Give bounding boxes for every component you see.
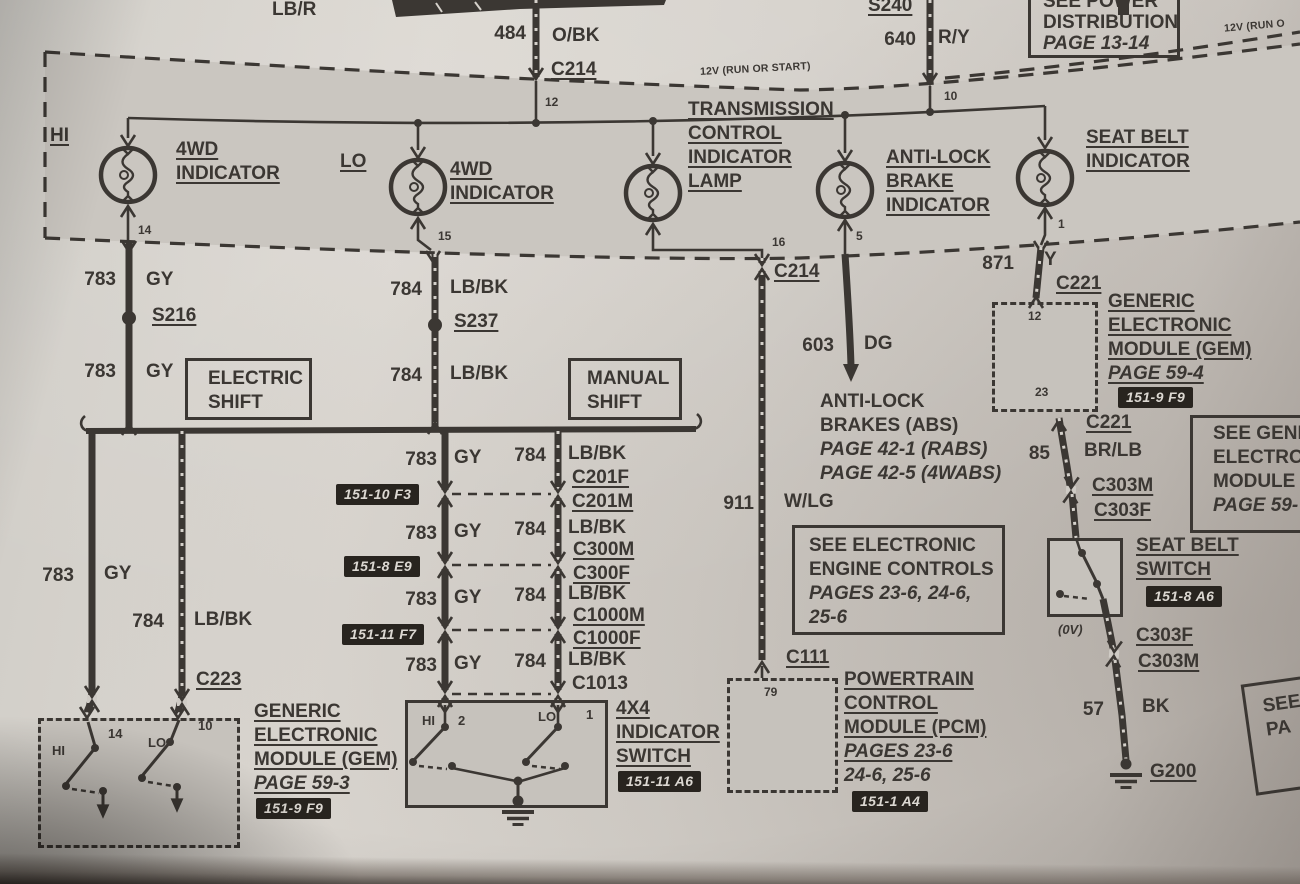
label-line: INDICATOR	[1086, 150, 1190, 174]
stack-row-number: 784	[498, 446, 546, 466]
pin-16: 16	[772, 236, 785, 249]
wire-871-number: 871	[978, 254, 1014, 274]
label-line: SWITCH	[616, 745, 691, 769]
pin-14: 14	[138, 224, 151, 237]
grid-badge: 151-1 A4	[852, 791, 928, 812]
connector-c303f-upper: C303F	[1094, 501, 1151, 521]
label-line: CONTROL	[688, 122, 782, 146]
wire-85-number: 85	[1016, 444, 1050, 464]
wire-911-color: W/LG	[784, 492, 834, 512]
label-line: MODULE (GEM)	[254, 748, 398, 772]
page-ref: PAGE 59-3	[254, 772, 350, 796]
label-line: INDICATOR	[616, 721, 720, 745]
stack-row-number: 784	[498, 652, 546, 672]
splice-s237: S237	[454, 312, 498, 332]
wire-783-number: 783	[74, 362, 116, 382]
label-line: SWITCH	[1136, 558, 1211, 582]
stack-row-number: 783	[392, 524, 437, 544]
wire-784-color: LB/BK	[450, 278, 508, 298]
wire-783-number: 783	[74, 270, 116, 290]
stack-row-number: 783	[392, 450, 437, 470]
stack-row-color: LB/BK	[568, 444, 626, 464]
label-line: MODULE (GEM)	[1108, 338, 1252, 362]
label-line: INDICATOR	[450, 182, 554, 206]
pin-10: 10	[944, 90, 957, 103]
grid-badge: 151-8 E9	[344, 556, 420, 577]
wire-603-number: 603	[794, 336, 834, 356]
wire-85-color: BR/LB	[1084, 441, 1142, 461]
label-line: ELECTRONIC	[1108, 314, 1232, 338]
wire-484-color: O/BK	[552, 26, 600, 46]
wire-color-lb-r: LB/R	[272, 0, 316, 20]
label-line: ANTI-LOCK	[886, 146, 990, 170]
label-line: TRANSMISSION	[688, 98, 834, 122]
page-ref: PAGE 42-1 (RABS)	[820, 438, 988, 462]
page-ref: PAGE 59-4	[1108, 362, 1204, 386]
lamp-tag-hi: HI	[50, 126, 69, 146]
pin-79: 79	[764, 686, 777, 699]
connector-c201m: C201M	[572, 492, 633, 512]
gem-pin-23: 23	[1035, 386, 1048, 399]
label-4wd-indicator-hi: 4WD INDICATOR	[176, 138, 280, 186]
label-antilock-brake-indicator: ANTI-LOCK BRAKE INDICATOR	[886, 146, 990, 218]
wire-784-number: 784	[380, 366, 422, 386]
label-line: BRAKE	[886, 170, 954, 194]
connector-c221-bottom: C221	[1086, 413, 1131, 433]
label-line: ANTI-LOCK	[820, 390, 924, 414]
grid-badge: 151-8 A6	[1146, 586, 1222, 607]
wire-871-color: Y	[1044, 250, 1057, 270]
pin-1: 1	[1058, 218, 1065, 231]
4x4-pin-2: 2	[458, 714, 465, 728]
wire-783-number-vertical: 783	[28, 566, 74, 586]
connector-c214-top: C214	[551, 60, 596, 80]
wire-484-number: 484	[486, 24, 526, 44]
connector-c303m-lower: C303M	[1138, 652, 1199, 672]
4x4-switch-lo: LO	[538, 710, 556, 724]
grid-badge: 151-10 F3	[336, 484, 419, 505]
stack-row-color: GY	[454, 448, 481, 468]
label-line: GENERIC	[254, 700, 341, 724]
gem-switch-hi: HI	[52, 744, 65, 758]
wiring-diagram-photo: SEE POWER DISTRIBUTION PAGE 13-14 O/D OF…	[0, 0, 1300, 884]
label-line: ELECTRONIC	[254, 724, 378, 748]
label-antilock-brakes-abs: ANTI-LOCK BRAKES (ABS) PAGE 42-1 (RABS) …	[820, 390, 1001, 486]
connector-c223: C223	[196, 670, 241, 690]
stack-row-color: LB/BK	[568, 584, 626, 604]
wire-911-number: 911	[714, 494, 754, 514]
label-seat-belt-switch: SEAT BELT SWITCH	[1136, 534, 1239, 582]
wire-57-number: 57	[1072, 700, 1104, 720]
label-line: CONTROL	[844, 692, 938, 716]
wire-783-color: GY	[146, 270, 173, 290]
stack-row-color: GY	[454, 588, 481, 608]
label-line: 4WD	[450, 158, 492, 182]
wire-57-color: BK	[1142, 697, 1169, 717]
connector-c221-top: C221	[1056, 274, 1101, 294]
label-pcm: POWERTRAIN CONTROL MODULE (PCM) PAGES 23…	[844, 668, 986, 788]
label-line: SEAT BELT	[1136, 534, 1239, 558]
switch-icon-gem	[62, 707, 185, 819]
label-transmission-control: TRANSMISSION CONTROL INDICATOR LAMP	[688, 98, 834, 194]
wire-603-abs-arrow	[843, 254, 859, 382]
gem-switch-lo: LO	[148, 736, 166, 750]
label-line: 4X4	[616, 697, 650, 721]
voltage-note-0v: (0V)	[1058, 623, 1083, 637]
ground-g200: G200	[1150, 762, 1196, 782]
page-ref: PAGE 42-5 (4WABS)	[820, 462, 1001, 486]
wire-784-number: 784	[380, 280, 422, 300]
label-line: GENERIC	[1108, 290, 1195, 314]
stack-row-color: GY	[454, 654, 481, 674]
label-seat-belt-indicator: SEAT BELT INDICATOR	[1086, 126, 1190, 174]
4x4-pin-1: 1	[586, 708, 593, 722]
wire-603-color: DG	[864, 334, 893, 354]
label-line: SEAT BELT	[1086, 126, 1189, 150]
splice-s216: S216	[152, 306, 196, 326]
connector-c300m: C300M	[573, 540, 634, 560]
connector-c303m-upper: C303M	[1092, 476, 1153, 496]
stack-row-number: 784	[498, 520, 546, 540]
connector-c1000f: C1000F	[573, 629, 641, 649]
connector-c303f-lower: C303F	[1136, 626, 1193, 646]
connector-c1000m: C1000M	[573, 606, 645, 626]
gem-pin-10: 10	[198, 719, 212, 733]
wire-783-color-vertical: GY	[104, 564, 131, 584]
page-ref: 24-6, 25-6	[844, 764, 931, 788]
4x4-switch-hi: HI	[422, 714, 435, 728]
wire-640-number: 640	[876, 30, 916, 50]
wire-784-color: LB/BK	[450, 364, 508, 384]
grid-badge: 151-11 F7	[342, 624, 424, 645]
stack-row-color: LB/BK	[568, 518, 626, 538]
connector-c214-center: C214	[774, 262, 819, 282]
stack-row-number: 783	[392, 656, 437, 676]
connector-c111: C111	[786, 648, 829, 668]
lamp-tag-lo: LO	[340, 152, 366, 172]
pin-15: 15	[438, 230, 451, 243]
pin-5: 5	[856, 230, 863, 243]
splice-s240: S240	[868, 0, 912, 16]
wire-911-to-pcm	[755, 254, 769, 678]
wire-783-color: GY	[146, 362, 173, 382]
connector-c1013: C1013	[572, 674, 628, 694]
label-gem-right: GENERIC ELECTRONIC MODULE (GEM) PAGE 59-…	[1108, 290, 1252, 386]
pin-12: 12	[545, 96, 558, 109]
label-4wd-indicator-lo: 4WD INDICATOR	[450, 158, 554, 206]
label-line: LAMP	[688, 170, 742, 194]
grid-badge: 151-11 A6	[618, 771, 701, 792]
gem-pin-12: 12	[1028, 310, 1041, 323]
stack-row-number: 783	[392, 590, 437, 610]
stack-row-color: LB/BK	[568, 650, 626, 670]
label-4x4-indicator-switch: 4X4 INDICATOR SWITCH	[616, 697, 720, 769]
grid-badge: 151-9 F9	[256, 798, 331, 819]
label-line: MODULE (PCM)	[844, 716, 986, 740]
stack-row-color: GY	[454, 522, 481, 542]
grid-badge: 151-9 F9	[1118, 387, 1193, 408]
label-line: 4WD	[176, 138, 218, 162]
label-line: INDICATOR	[688, 146, 792, 170]
label-gem-bottom-left: GENERIC ELECTRONIC MODULE (GEM) PAGE 59-…	[254, 700, 398, 796]
wire-640-color: R/Y	[938, 28, 970, 48]
gem-pin-14: 14	[108, 727, 122, 741]
connector-c201f: C201F	[572, 468, 629, 488]
label-line: INDICATOR	[176, 162, 280, 186]
wire-784-color-vertical: LB/BK	[194, 610, 252, 630]
stack-row-number: 784	[498, 586, 546, 606]
label-line: INDICATOR	[886, 194, 990, 218]
wire-784-number-vertical: 784	[118, 612, 164, 632]
page-ref: PAGES 23-6	[844, 740, 952, 764]
diagram-sheet: SEE POWER DISTRIBUTION PAGE 13-14 O/D OF…	[0, 0, 1300, 884]
connector-c300f: C300F	[573, 564, 630, 584]
label-line: POWERTRAIN	[844, 668, 974, 692]
label-line: BRAKES (ABS)	[820, 414, 958, 438]
